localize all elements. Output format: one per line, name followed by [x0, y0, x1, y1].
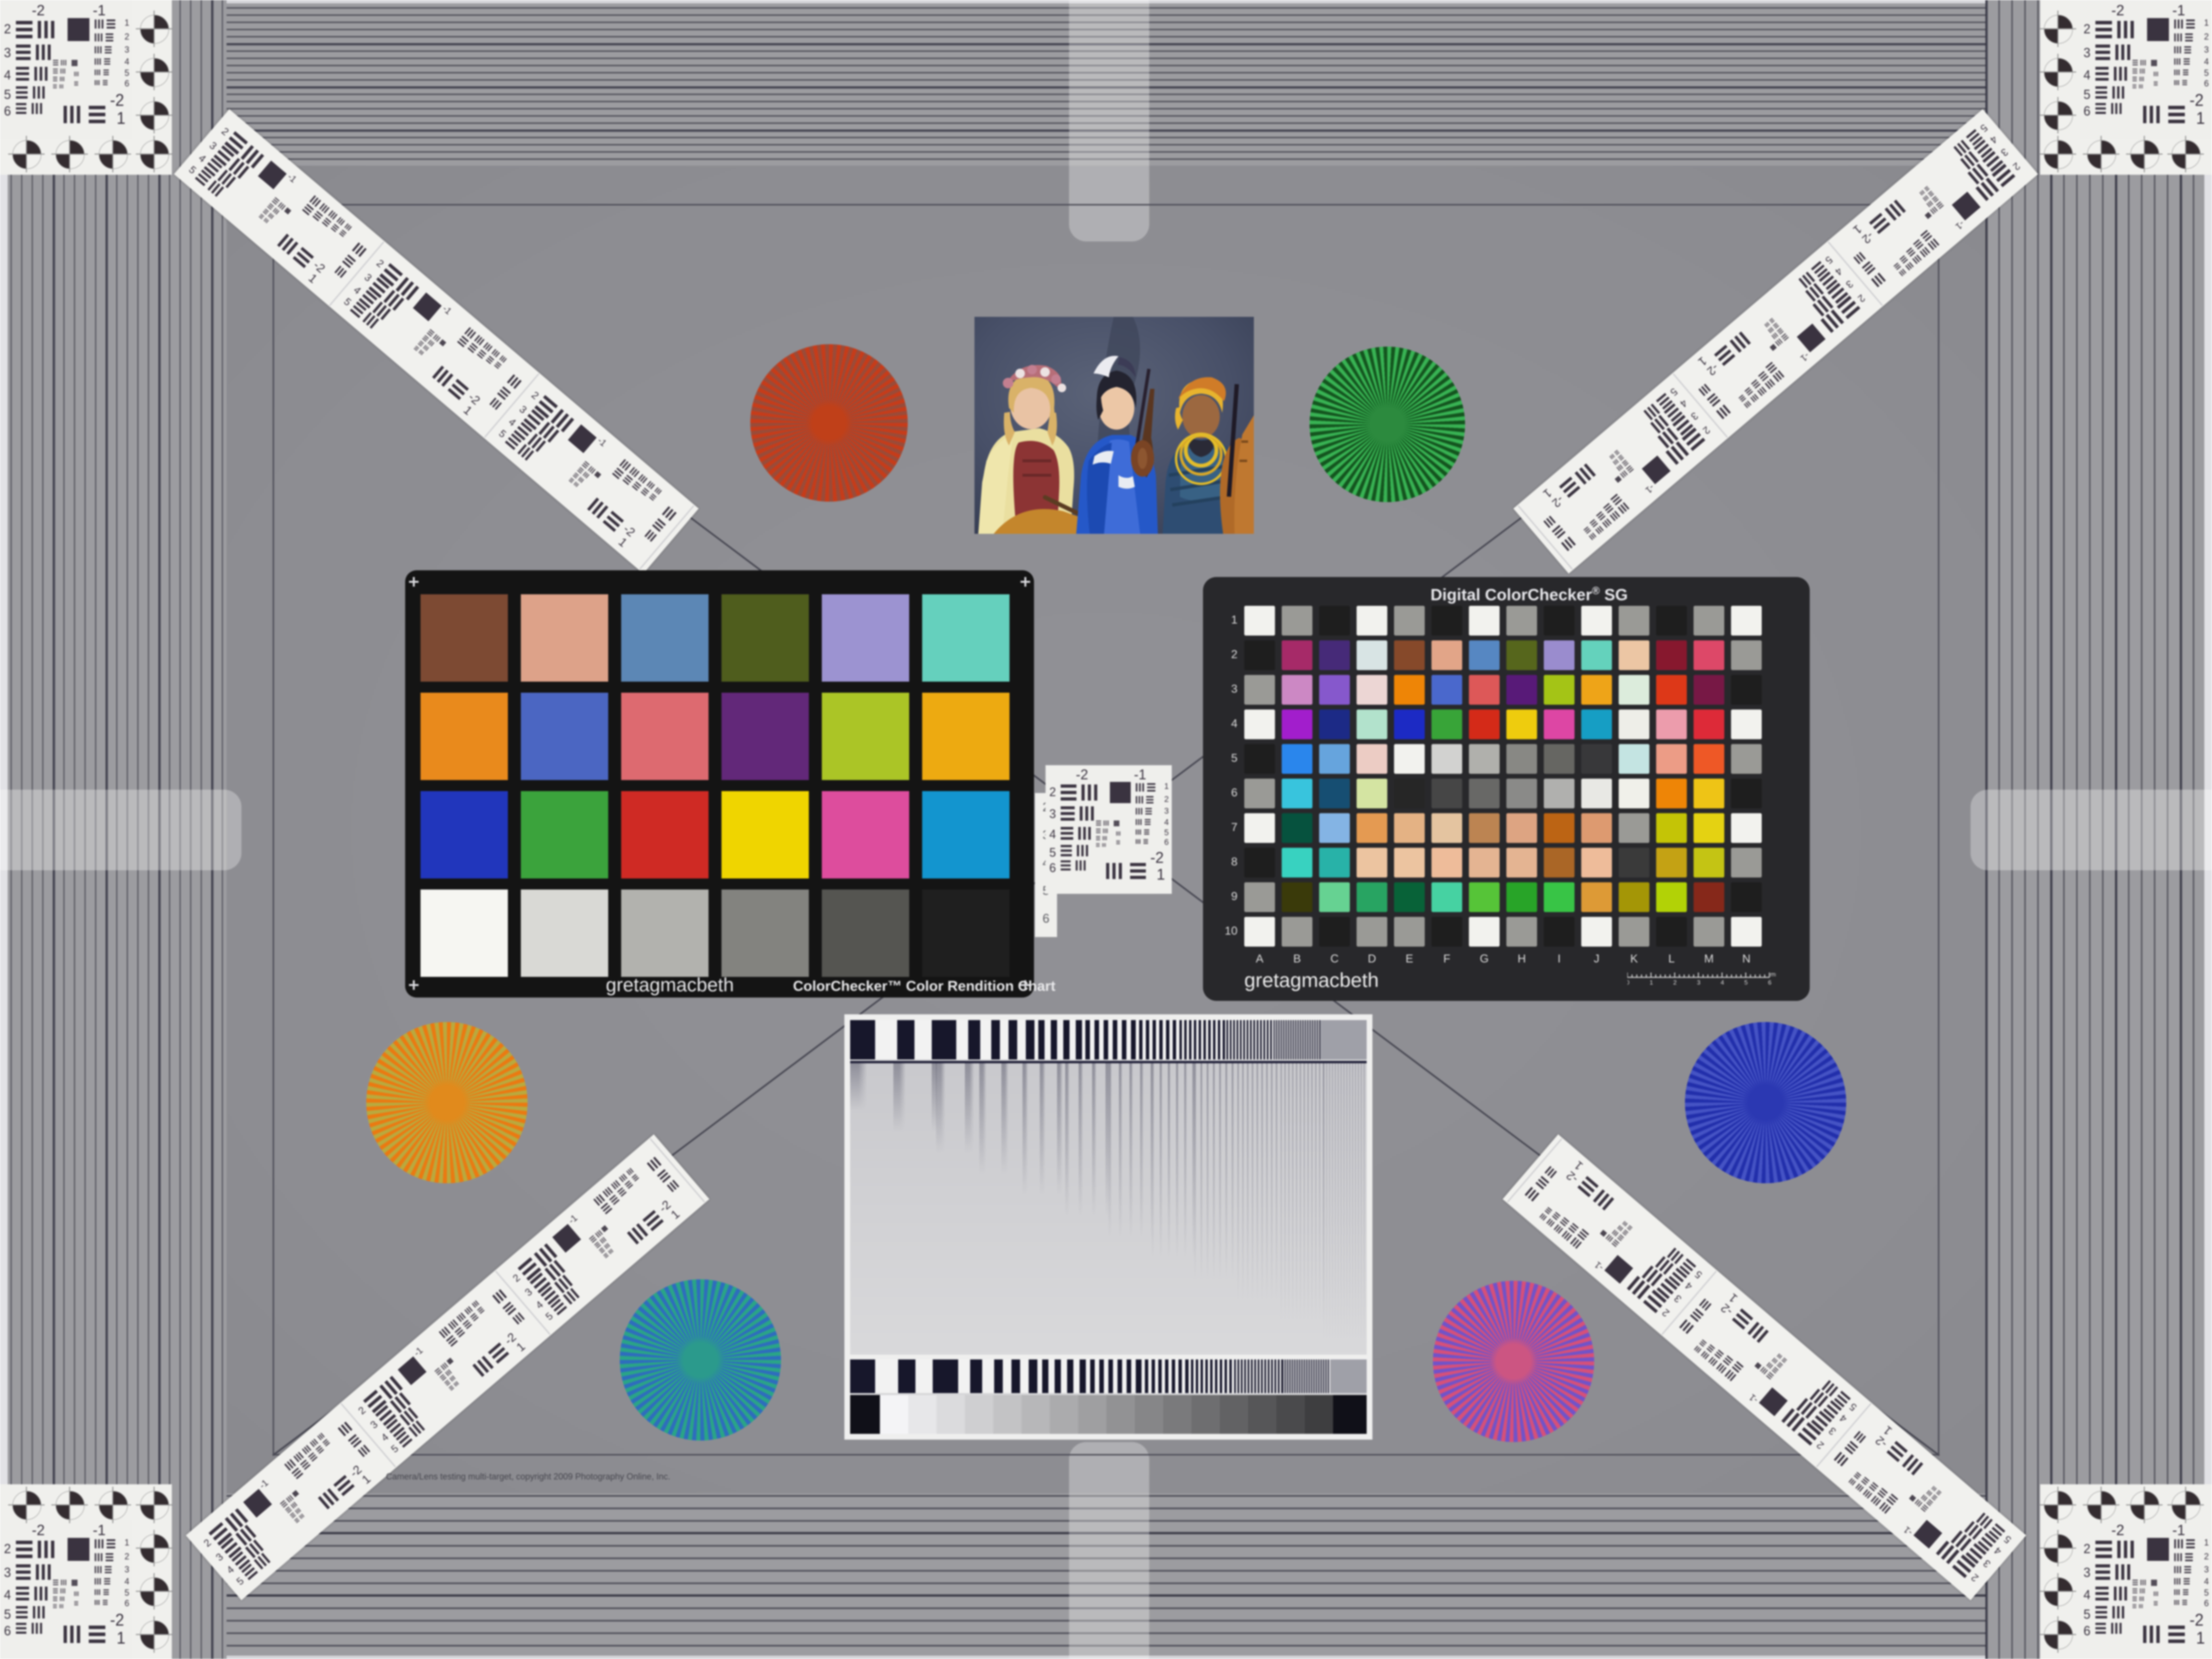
svg-text:3: 3	[1697, 979, 1700, 985]
svg-text:0: 0	[1627, 979, 1629, 985]
svg-text:5: 5	[1744, 979, 1748, 985]
svg-text:2: 2	[1673, 979, 1677, 985]
svg-text:4: 4	[1720, 979, 1724, 985]
svg-text:mm: mm	[1770, 971, 1776, 978]
svg-text:1: 1	[1649, 979, 1653, 985]
svg-text:6: 6	[1768, 979, 1771, 985]
